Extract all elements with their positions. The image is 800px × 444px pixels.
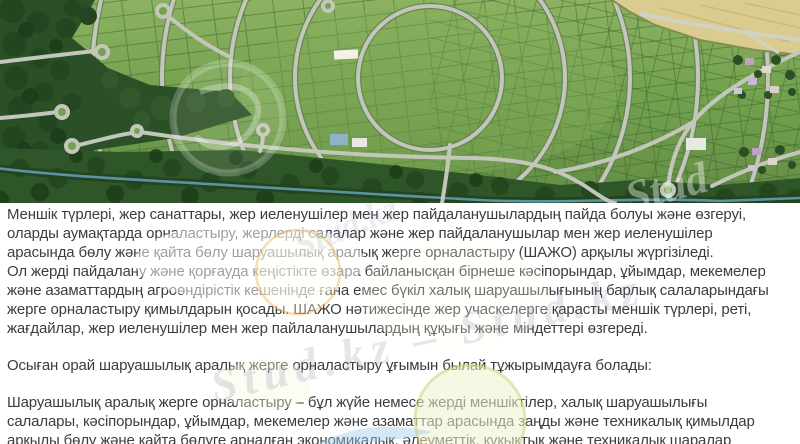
- article: Меншік түрлері, жер санаттары, жер иелен…: [7, 205, 797, 444]
- article-line: арасында бөлу және қайта бөлу шаруашылық…: [7, 243, 797, 262]
- aerial-photo-illustration: Stud: [0, 0, 800, 203]
- article-line: Меншік түрлері, жер санаттары, жер иелен…: [7, 205, 797, 224]
- aerial-photo: Stud: [0, 0, 800, 203]
- article-line: Осыған орай шаруашылық аралық жерге орна…: [7, 356, 797, 375]
- article-line: арқылы бөлу және қайта бөлуге арналған э…: [7, 431, 797, 444]
- article-line: оларды аумақтарда орналастыру, жерлерді …: [7, 224, 797, 243]
- paragraph-2: Осыған орай шаруашылық аралық жерге орна…: [7, 356, 797, 375]
- page: Stud Меншік түрлері, жер санаттары, жер …: [0, 0, 800, 444]
- paragraph-3: Шаруашылық аралық жерге орналастыру – бұ…: [7, 393, 797, 444]
- article-line: жерге орналастыру қимылдарын қосады. ШАЖ…: [7, 300, 797, 319]
- article-line: салалары, кәсіпорындар, ұйымдар, мекемел…: [7, 412, 797, 431]
- article-line: Ол жерді пайдалану және қорғауда кеңісті…: [7, 262, 797, 281]
- article-line: жағдайлар, жер иеленушілер мен жер пайла…: [7, 319, 797, 338]
- article-line: Шаруашылық аралық жерге орналастыру – бұ…: [7, 393, 797, 412]
- article-line: және азаматтардың агроөндірістік кешенін…: [7, 281, 797, 300]
- paragraph-1: Меншік түрлері, жер санаттары, жер иелен…: [7, 205, 797, 338]
